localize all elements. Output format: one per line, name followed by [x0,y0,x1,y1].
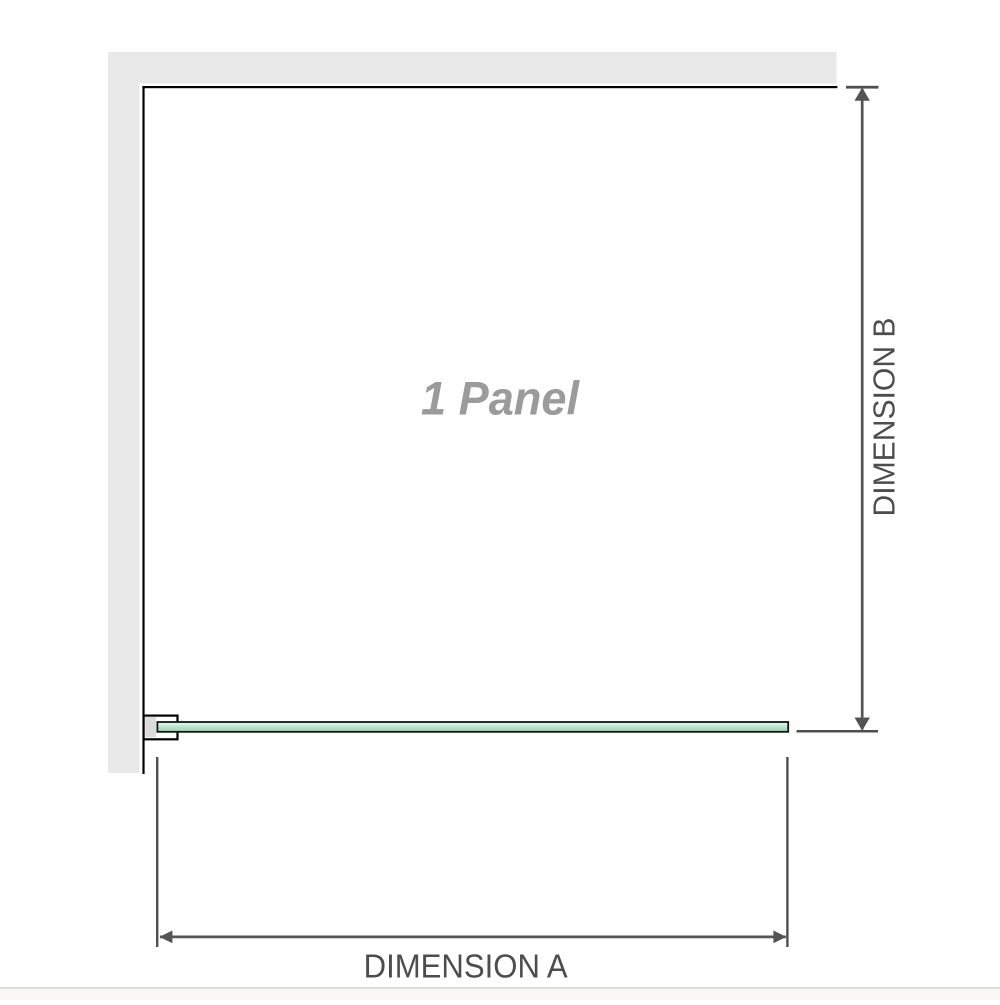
svg-text:DIMENSION A: DIMENSION A [364,948,568,985]
svg-text:DIMENSION B: DIMENSION B [867,318,902,517]
svg-text:1 Panel: 1 Panel [421,372,580,425]
